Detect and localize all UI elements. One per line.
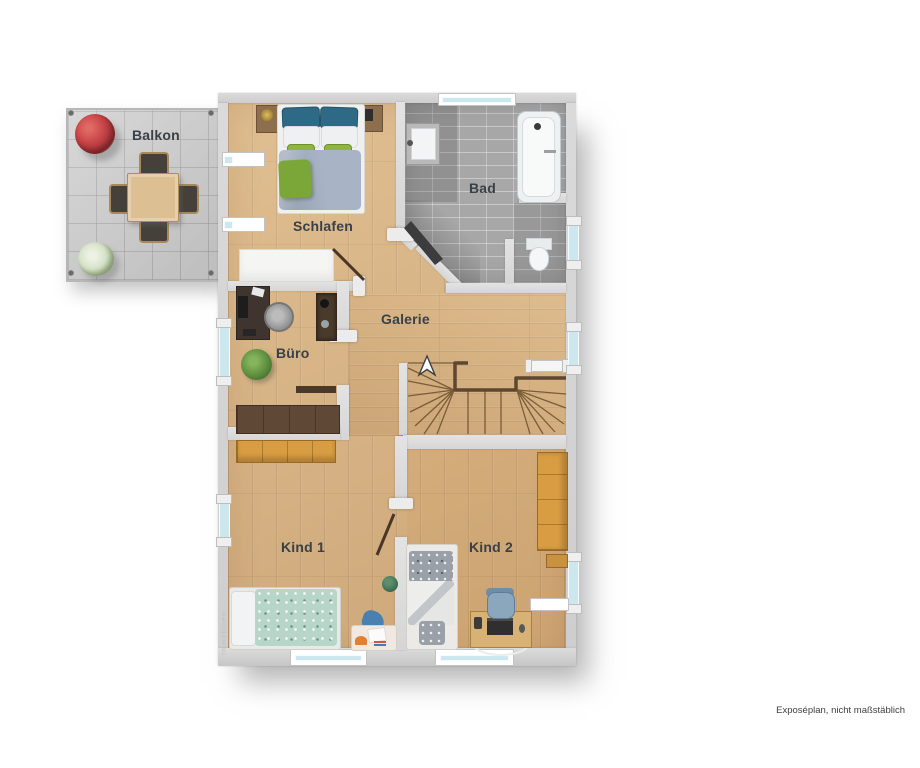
window-galerie-east: [568, 330, 579, 367]
crayon: [374, 644, 386, 646]
window-post: [216, 376, 232, 386]
foot-cushion-kind2: [419, 621, 445, 645]
wall-end-cap: [353, 276, 365, 296]
window-bad-north: [438, 93, 516, 106]
clock-on-nightstand: [261, 109, 273, 121]
pillow-kind2: [409, 551, 453, 582]
monitor: [238, 296, 248, 318]
wall-schlafen-bad: [396, 102, 405, 230]
mouse: [519, 624, 525, 633]
window-post: [566, 260, 582, 270]
room-label-kind1: Kind 1: [281, 539, 325, 555]
wall-kind2-north: [403, 435, 566, 449]
wardrobe-kind1: [236, 440, 336, 463]
laptop-kind2: [487, 618, 513, 635]
floor-plan-canvas: Balkon: [0, 0, 920, 768]
sideboard: [236, 405, 340, 434]
window-post: [566, 216, 582, 226]
wall-board: [296, 386, 336, 393]
toy-ball: [382, 576, 398, 592]
window-post: [216, 537, 232, 547]
wall-stairs-west: [399, 363, 407, 435]
wall-kind-divider-upper: [395, 436, 407, 500]
room-label-bad: Bad: [469, 180, 496, 196]
window-post: [566, 552, 582, 562]
balcony-window-sill-upper: [222, 152, 265, 167]
red-flower-plant: [75, 114, 115, 154]
window-post: [566, 365, 582, 375]
crayon: [374, 641, 386, 643]
sink-faucet: [407, 140, 413, 146]
balcony-corner-bolt: [68, 110, 74, 116]
office-chair: [264, 302, 294, 332]
room-label-buero: Büro: [276, 345, 309, 361]
bed-blanket-green: [278, 159, 312, 199]
window-post: [566, 322, 582, 332]
item-on-nightstand: [365, 109, 373, 121]
desk-item: [474, 617, 482, 629]
room-label-balkon: Balkon: [132, 127, 180, 143]
wall-end-cap: [387, 228, 414, 241]
shelf-item: [321, 320, 329, 328]
wall-bad-south: [446, 283, 566, 293]
balcony-corner-bolt: [208, 270, 214, 276]
balcony-window-sill-lower: [222, 217, 265, 232]
white-flower-plant: [78, 242, 114, 276]
balcony-corner-bolt: [208, 110, 214, 116]
duvet-kind2: [408, 581, 454, 625]
chair-kind2: [487, 592, 515, 619]
room-label-schlafen: Schlafen: [293, 218, 353, 234]
wardrobe-kind2: [537, 452, 568, 551]
potted-plant: [241, 349, 272, 380]
pillow-kind1: [231, 591, 256, 646]
shelf-item: [320, 299, 329, 308]
window-buero-west: [219, 326, 230, 378]
keyboard: [243, 329, 256, 336]
sink-basin: [411, 128, 436, 160]
window-kind1-south: [290, 649, 367, 666]
wall-end-cap: [389, 498, 413, 509]
bathtub-faucet: [544, 150, 556, 153]
dresser: [239, 249, 334, 282]
toy-orange: [355, 636, 367, 645]
shelf-kind2: [546, 554, 568, 568]
watermark-text: Immobilien: [221, 611, 228, 655]
wall-bad-wc-stub: [505, 239, 514, 283]
duvet-kind1: [255, 589, 337, 646]
window-kind2-east: [568, 560, 579, 606]
balcony-table: [127, 173, 179, 222]
window-kind1-west: [219, 502, 230, 539]
bathtub-drain: [534, 123, 541, 130]
room-label-kind2: Kind 2: [469, 539, 513, 555]
footer-note: Exposéplan, nicht maßstäblich: [776, 705, 905, 716]
railing-post: [525, 359, 532, 373]
window-post: [216, 318, 232, 328]
window-bad-east: [568, 224, 579, 262]
toilet: [529, 247, 549, 271]
window-sill-kind2: [530, 598, 569, 611]
balcony-corner-bolt: [68, 270, 74, 276]
window-post: [216, 494, 232, 504]
room-label-galerie: Galerie: [381, 311, 430, 327]
